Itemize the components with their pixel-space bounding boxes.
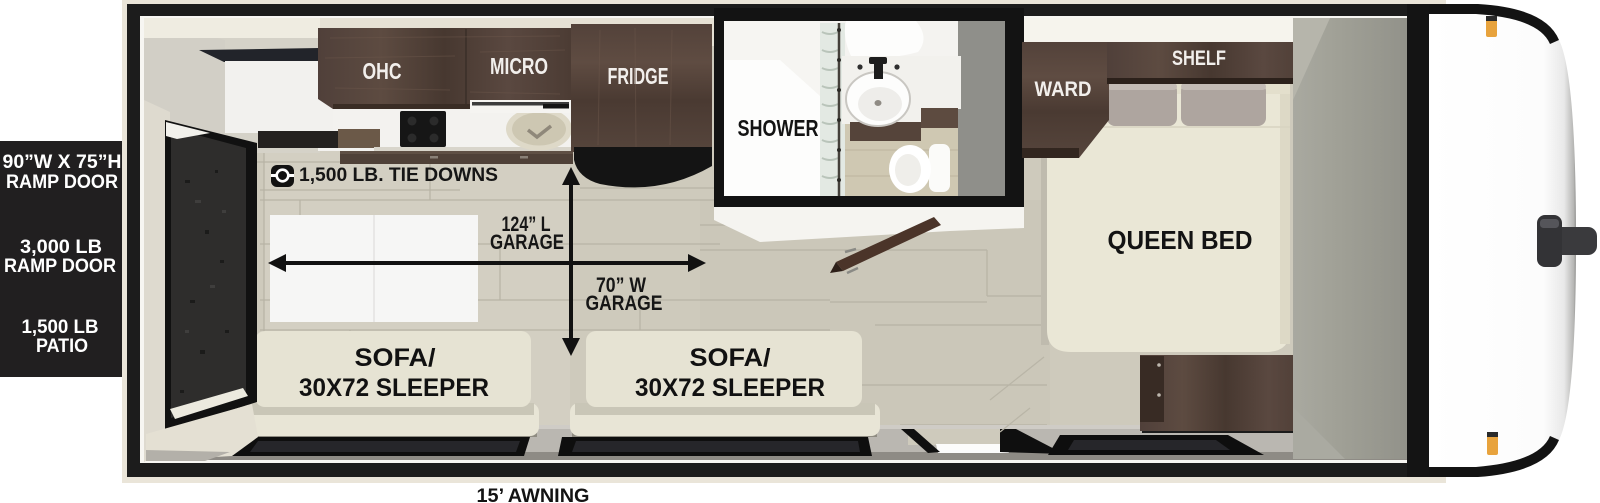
svg-text:OHC: OHC (363, 58, 402, 84)
svg-text:GARAGE: GARAGE (490, 231, 564, 254)
svg-text:QUEEN BED: QUEEN BED (1108, 225, 1253, 255)
svg-text:1,500 LB. TIE DOWNS: 1,500 LB. TIE DOWNS (299, 164, 498, 186)
svg-text:30X72 SLEEPER: 30X72 SLEEPER (299, 374, 489, 402)
svg-text:PATIO: PATIO (36, 335, 88, 357)
svg-text:15’ AWNING: 15’ AWNING (477, 486, 590, 503)
svg-text:90”W X 75”H: 90”W X 75”H (3, 151, 122, 173)
svg-text:SOFA/: SOFA/ (690, 344, 771, 372)
svg-text:SHOWER: SHOWER (738, 115, 819, 141)
svg-text:SOFA/: SOFA/ (355, 344, 436, 372)
svg-text:RAMP DOOR: RAMP DOOR (4, 255, 116, 277)
svg-text:30X72 SLEEPER: 30X72 SLEEPER (635, 374, 825, 402)
svg-text:SHELF: SHELF (1172, 47, 1226, 70)
svg-text:WARD: WARD (1035, 78, 1092, 101)
svg-text:RAMP DOOR: RAMP DOOR (6, 171, 118, 193)
svg-text:FRIDGE: FRIDGE (608, 63, 669, 89)
svg-text:MICRO: MICRO (490, 53, 548, 79)
svg-text:GARAGE: GARAGE (586, 292, 663, 315)
